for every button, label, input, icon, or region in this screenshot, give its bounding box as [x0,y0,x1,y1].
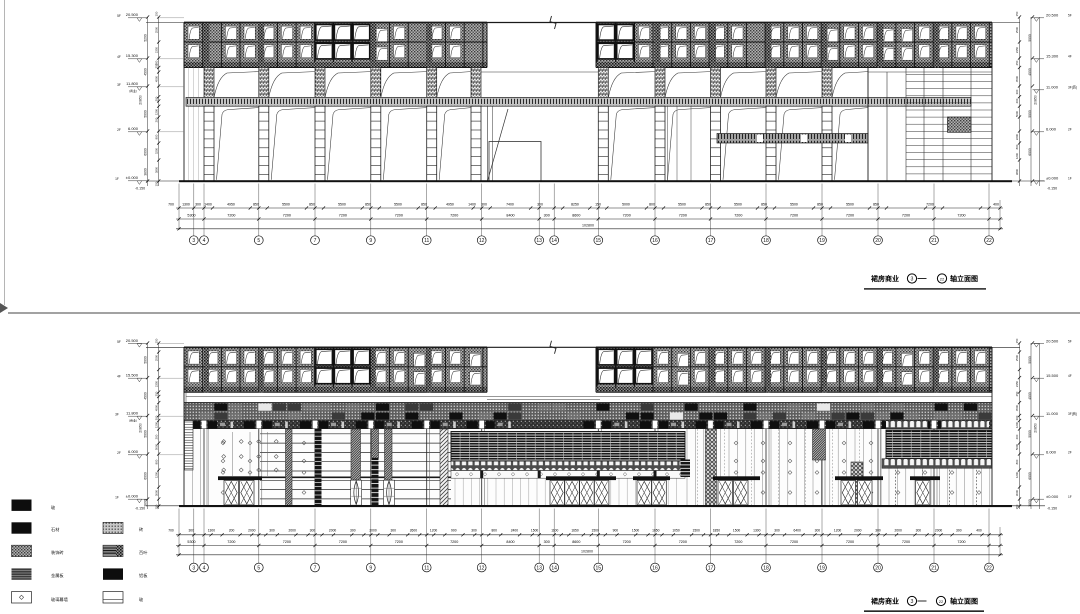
svg-text:7200: 7200 [623,540,631,544]
svg-text:7200: 7200 [283,214,291,218]
svg-text:轴立面图: 轴立面图 [950,274,978,283]
svg-text:7200: 7200 [846,214,854,218]
svg-text:7: 7 [314,238,317,244]
svg-text:2F: 2F [1068,128,1072,132]
svg-text:-0.150: -0.150 [135,507,145,511]
svg-text:20: 20 [875,238,881,244]
svg-text:7200: 7200 [227,540,235,544]
svg-text:700: 700 [168,529,174,533]
svg-text:150: 150 [1015,504,1019,509]
svg-text:800: 800 [649,203,655,207]
svg-text:850: 850 [365,203,371,207]
svg-text:4500: 4500 [143,68,147,76]
svg-text:200: 200 [229,529,235,533]
svg-text:1300: 1300 [753,529,761,533]
svg-text:1200: 1200 [154,421,158,428]
svg-text:5500: 5500 [338,203,346,207]
svg-text:2000: 2000 [248,529,256,533]
svg-text:11.800: 11.800 [126,411,139,416]
svg-text:7: 7 [314,565,317,571]
svg-text:3: 3 [192,565,195,571]
svg-text:7200: 7200 [790,540,798,544]
svg-text:7200: 7200 [227,214,235,218]
svg-text:±0.000: ±0.000 [126,494,139,499]
svg-text:15.300: 15.300 [1046,54,1059,59]
svg-text:1300: 1300 [208,529,216,533]
svg-text:12: 12 [479,565,485,571]
svg-text:5F: 5F [1068,339,1072,343]
svg-text:-0.150: -0.150 [135,187,145,191]
svg-text:11: 11 [424,238,429,244]
svg-text:玻璃幕墙: 玻璃幕墙 [51,596,68,603]
svg-text:300: 300 [544,214,550,218]
svg-text:6000: 6000 [1028,472,1032,480]
svg-text:400: 400 [976,529,982,533]
svg-text:4950: 4950 [227,203,235,207]
svg-text:3200: 3200 [154,147,158,154]
svg-text:8600: 8600 [572,214,580,218]
svg-text:300: 300 [269,529,275,533]
svg-text:7200: 7200 [623,214,631,218]
svg-text:3: 3 [911,277,914,283]
svg-text:5000: 5000 [154,443,158,450]
svg-text:14: 14 [551,238,557,244]
svg-text:300: 300 [390,529,396,533]
svg-text:4500: 4500 [154,75,158,82]
svg-text:±0.000: ±0.000 [126,175,139,180]
svg-text:800: 800 [1015,144,1019,149]
svg-text:300: 300 [537,203,543,207]
svg-text:150: 150 [154,338,158,343]
svg-text:1500: 1500 [733,529,741,533]
svg-text:1F: 1F [115,177,119,181]
svg-text:300: 300 [916,529,922,533]
svg-text:20: 20 [875,565,881,571]
svg-text:±0.000: ±0.000 [1046,176,1059,181]
svg-text:7200: 7200 [679,540,687,544]
svg-text:300: 300 [481,203,487,207]
svg-text:5000: 5000 [1028,356,1032,364]
svg-text:6000: 6000 [1028,148,1032,156]
svg-text:5200: 5200 [143,34,147,42]
svg-text:18: 18 [763,565,769,571]
svg-text:4: 4 [203,238,206,244]
svg-text:5500: 5500 [734,203,742,207]
svg-text:15: 15 [596,238,602,244]
svg-text:20.500: 20.500 [1046,338,1059,343]
svg-text:1850: 1850 [713,529,721,533]
svg-text:1200: 1200 [834,529,842,533]
svg-text:22: 22 [939,599,944,604]
svg-text:7200: 7200 [902,540,910,544]
svg-text:250: 250 [154,391,158,396]
svg-text:2350: 2350 [154,380,158,387]
svg-text:7200: 7200 [283,540,291,544]
svg-text:2500: 2500 [1015,354,1019,361]
svg-text:3000: 3000 [1015,489,1019,496]
svg-text:22: 22 [986,238,992,244]
svg-text:8600: 8600 [572,540,580,544]
svg-text:2400: 2400 [511,529,519,533]
svg-text:17: 17 [708,238,714,244]
svg-text:2500: 2500 [1015,26,1019,33]
svg-text:2000: 2000 [329,529,337,533]
svg-text:-0.150: -0.150 [1047,187,1057,191]
svg-text:1F: 1F [1068,177,1072,181]
svg-text:1650: 1650 [652,529,660,533]
svg-text:7200: 7200 [926,203,934,207]
svg-text:5000: 5000 [1028,430,1032,438]
svg-text:700: 700 [168,203,174,207]
svg-text:850: 850 [421,203,427,207]
svg-text:3800: 3800 [1015,168,1019,175]
svg-text:16: 16 [652,565,658,571]
svg-text:8400: 8400 [506,214,514,218]
svg-text:800: 800 [154,459,158,464]
svg-text:8250: 8250 [571,203,579,207]
svg-text:百叶: 百叶 [139,549,148,556]
svg-text:1100: 1100 [551,529,558,533]
svg-text:3800: 3800 [154,166,158,173]
svg-text:1200: 1200 [1015,471,1019,478]
svg-text:6.000: 6.000 [1046,127,1057,132]
svg-text:20.500: 20.500 [126,12,139,17]
svg-text:3F: 3F [117,83,121,87]
svg-text:2350: 2350 [1015,46,1019,53]
svg-text:850: 850 [309,203,315,207]
svg-text:800: 800 [154,134,158,139]
svg-text:18: 18 [763,238,769,244]
svg-text:5500: 5500 [790,203,798,207]
svg-text:15.500: 15.500 [1046,373,1059,378]
svg-text:13: 13 [536,238,542,244]
svg-text:1300: 1300 [182,203,190,207]
svg-text:4F: 4F [117,55,121,59]
svg-text:4F: 4F [1068,55,1072,59]
svg-text:150: 150 [154,504,158,509]
svg-text:20850: 20850 [1034,423,1038,433]
svg-text:4500: 4500 [143,392,147,400]
svg-text:1500: 1500 [632,529,640,533]
svg-text:5: 5 [257,238,260,244]
svg-text:14: 14 [551,565,557,571]
svg-text:4F: 4F [1068,374,1072,378]
svg-text:2600: 2600 [410,529,418,533]
svg-text:1500: 1500 [592,529,600,533]
svg-text:1050: 1050 [672,529,680,533]
svg-text:19: 19 [819,238,825,244]
svg-text:5000: 5000 [143,110,147,118]
svg-text:2500: 2500 [154,354,158,361]
svg-text:3800: 3800 [143,168,147,176]
svg-text:19: 19 [819,565,825,571]
svg-text:2000: 2000 [935,529,943,533]
svg-text:7200: 7200 [339,214,347,218]
svg-text:150: 150 [595,203,601,207]
svg-text:20850: 20850 [139,423,143,433]
svg-text:4500: 4500 [1028,68,1032,76]
svg-text:1200: 1200 [1015,421,1019,428]
svg-text:20850: 20850 [139,95,143,105]
svg-text:2000: 2000 [854,529,862,533]
svg-text:20.500: 20.500 [1046,13,1059,18]
svg-text:6000: 6000 [143,472,147,480]
svg-text:7200: 7200 [679,214,687,218]
svg-text:轴立面图: 轴立面图 [950,597,978,606]
svg-text:150: 150 [1015,338,1019,343]
svg-text:20850: 20850 [1034,95,1038,105]
svg-text:11: 11 [424,565,429,571]
svg-text:5000: 5000 [143,356,147,364]
svg-text:3: 3 [911,599,914,605]
svg-text:5500: 5500 [846,203,854,207]
svg-text:3F(商): 3F(商) [1068,85,1077,90]
svg-text:850: 850 [873,203,879,207]
svg-text:200: 200 [154,434,158,439]
svg-text:200: 200 [1015,98,1019,103]
svg-text:300: 300 [956,529,962,533]
svg-text:21: 21 [931,238,937,244]
svg-text:21: 21 [931,565,937,571]
svg-text:800: 800 [491,529,497,533]
svg-text:300: 300 [875,529,881,533]
svg-text:3000: 3000 [154,489,158,496]
svg-text:300: 300 [350,529,356,533]
svg-text:200: 200 [154,117,158,122]
svg-text:400: 400 [993,203,999,207]
svg-text:2F: 2F [117,451,121,455]
svg-text:11.000: 11.000 [1046,411,1059,416]
svg-text:(商业): (商业) [129,418,137,423]
svg-text:2F: 2F [117,128,121,132]
svg-text:22: 22 [940,277,945,282]
svg-text:5000: 5000 [143,430,147,438]
svg-text:5000: 5000 [1028,34,1032,42]
svg-text:装饰砖: 装饰砖 [51,549,64,556]
svg-text:2000: 2000 [289,529,297,533]
svg-text:300: 300 [471,529,477,533]
svg-text:1200: 1200 [430,529,438,533]
svg-text:300: 300 [154,415,158,420]
svg-text:7200: 7200 [790,214,798,218]
svg-text:6.000: 6.000 [128,449,139,454]
svg-text:7200: 7200 [846,540,854,544]
svg-text:4950: 4950 [446,203,454,207]
svg-text:850: 850 [253,203,259,207]
svg-text:11.800: 11.800 [126,81,139,86]
svg-text:300: 300 [774,529,780,533]
svg-text:裙房商业: 裙房商业 [870,597,899,606]
svg-text:7200: 7200 [450,214,458,218]
svg-text:15.500: 15.500 [126,373,139,378]
svg-text:2200: 2200 [1015,133,1019,140]
svg-text:4500: 4500 [1015,404,1019,411]
svg-text:300: 300 [188,529,194,533]
svg-text:102800: 102800 [581,550,593,554]
svg-text:150: 150 [154,181,158,186]
svg-text:4: 4 [203,565,206,571]
svg-text:6400: 6400 [794,529,802,533]
svg-text:7200: 7200 [339,540,347,544]
svg-text:7400: 7400 [506,203,514,207]
svg-text:±0.000: ±0.000 [1046,494,1059,499]
svg-text:250: 250 [1015,391,1019,396]
svg-text:900: 900 [613,529,619,533]
svg-text:300: 300 [154,96,158,101]
svg-text:7200: 7200 [734,540,742,544]
svg-text:4500: 4500 [1015,75,1019,82]
svg-text:金属板: 金属板 [51,572,64,579]
svg-text:300: 300 [310,529,316,533]
svg-text:300: 300 [815,529,821,533]
svg-text:3800: 3800 [1028,499,1032,507]
svg-text:1500: 1500 [693,529,701,533]
svg-text:22: 22 [986,565,992,571]
svg-text:1400: 1400 [204,203,212,207]
svg-text:2350: 2350 [154,46,158,53]
svg-text:300: 300 [1015,89,1019,94]
svg-text:800: 800 [1015,459,1019,464]
svg-text:2000: 2000 [369,529,377,533]
svg-text:150: 150 [1015,11,1019,16]
svg-text:1400: 1400 [468,203,476,207]
svg-text:300: 300 [544,540,550,544]
svg-text:7200: 7200 [395,540,403,544]
svg-text:(商业): (商业) [129,88,137,93]
svg-text:11.000: 11.000 [1046,85,1059,90]
svg-text:5000: 5000 [1015,110,1019,117]
svg-text:5F: 5F [1068,14,1072,18]
svg-text:4F: 4F [117,375,121,379]
svg-text:3F: 3F [115,413,119,417]
svg-text:-0.150: -0.150 [1047,507,1057,511]
svg-text:4500: 4500 [1028,392,1032,400]
svg-text:8400: 8400 [506,540,514,544]
svg-text:裙房商业: 裙房商业 [870,274,899,283]
svg-text:5500: 5500 [282,203,290,207]
svg-text:5300: 5300 [187,214,195,218]
svg-text:6.000: 6.000 [1046,450,1057,455]
svg-text:7200: 7200 [734,214,742,218]
svg-text:200: 200 [1015,434,1019,439]
svg-text:250: 250 [154,63,158,68]
svg-text:1500: 1500 [531,529,539,533]
svg-text:4500: 4500 [154,404,158,411]
svg-text:250: 250 [1015,60,1019,65]
svg-text:850: 850 [705,203,711,207]
svg-text:102800: 102800 [582,224,594,228]
svg-text:13: 13 [536,565,542,571]
svg-text:6000: 6000 [143,148,147,156]
svg-text:5000: 5000 [1015,443,1019,450]
svg-text:5500: 5500 [678,203,686,207]
svg-text:300: 300 [195,203,201,207]
svg-text:5: 5 [257,565,260,571]
svg-text:2F: 2F [1068,451,1072,455]
svg-text:砖: 砖 [139,526,143,533]
svg-text:铝板: 铝板 [139,572,148,579]
svg-text:5F: 5F [117,340,121,344]
svg-text:7200: 7200 [957,214,965,218]
svg-text:12: 12 [479,238,485,244]
svg-text:5500: 5500 [394,203,402,207]
svg-text:3F(商): 3F(商) [1068,411,1077,416]
svg-text:20.500: 20.500 [126,338,139,343]
svg-text:3: 3 [192,238,195,244]
svg-text:1200: 1200 [154,471,158,478]
svg-text:石材: 石材 [51,526,59,533]
svg-text:9: 9 [369,238,372,244]
svg-text:15: 15 [596,565,602,571]
svg-text:5000: 5000 [622,203,630,207]
svg-text:900: 900 [451,529,457,533]
svg-text:5300: 5300 [187,540,195,544]
svg-text:9: 9 [369,565,372,571]
svg-text:2500: 2500 [154,26,158,33]
svg-text:5F: 5F [117,14,121,18]
svg-text:1200: 1200 [1015,152,1019,159]
svg-text:16: 16 [652,238,658,244]
svg-text:1F: 1F [1068,495,1072,499]
svg-text:7200: 7200 [450,540,458,544]
svg-text:1F: 1F [115,496,119,500]
svg-text:1650: 1650 [571,529,579,533]
svg-text:300: 300 [1015,415,1019,420]
svg-text:1200: 1200 [154,108,158,115]
svg-text:2350: 2350 [1015,380,1019,387]
svg-text:6.000: 6.000 [128,126,139,131]
svg-text:150: 150 [154,11,158,16]
svg-text:7200: 7200 [902,214,910,218]
svg-text:7200: 7200 [957,540,965,544]
svg-text:7200: 7200 [395,214,403,218]
svg-text:2000: 2000 [895,529,903,533]
svg-text:850: 850 [817,203,823,207]
svg-text:5000: 5000 [1028,110,1032,118]
svg-text:850: 850 [761,203,767,207]
svg-text:17: 17 [708,565,714,571]
svg-text:15.300: 15.300 [126,53,139,58]
